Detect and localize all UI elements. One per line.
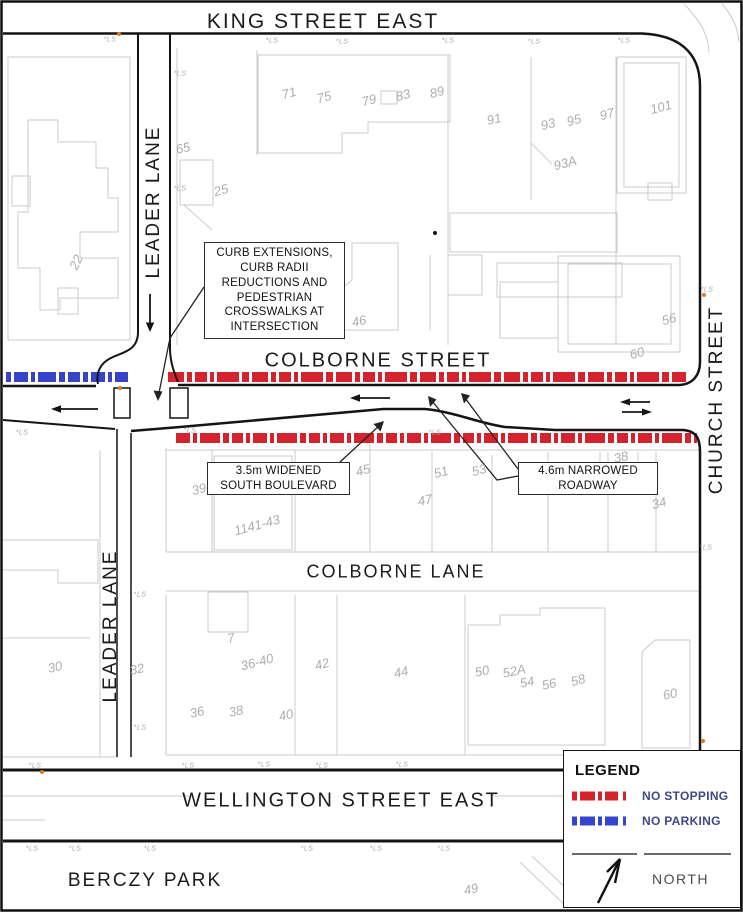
north-label: NORTH (652, 871, 709, 887)
legend-no-stopping-label: NO STOPPING (642, 789, 728, 803)
north-arrow-icon (598, 859, 620, 903)
street-label-king: KING STREET EAST (207, 10, 439, 34)
crosswalk-box-west (114, 388, 130, 418)
legend-title: LEGEND (575, 762, 641, 779)
street-label-wellington: WELLINGTON STREET EAST (182, 790, 500, 813)
legend-no-parking-label: NO PARKING (642, 814, 721, 828)
street-label-leader-lane-upper: LEADER LANE (143, 126, 165, 279)
crosswalk-box-east (170, 388, 188, 418)
park-label-berczy: BERCZY PARK (68, 870, 222, 892)
legend-box: LEGEND NO STOPPING NO PARKING NORTH (563, 750, 741, 908)
street-label-church: CHURCH STREET (706, 306, 728, 495)
callout-narrowed-roadway: 4.6m NARROWED ROADWAY (518, 462, 658, 495)
survey-point-dots (40, 32, 706, 774)
callout-widened-boulevard: 3.5m WIDENED SOUTH BOULEVARD (207, 462, 350, 495)
street-label-leader-lane-lower: LEADER LANE (100, 550, 122, 703)
traffic-plan-page: { "map": { "streets": { "king": "KING ST… (0, 0, 743, 912)
street-label-colborne-lane: COLBORNE LANE (306, 562, 485, 583)
callout-curb-extensions: CURB EXTENSIONS, CURB RADII REDUCTIONS A… (204, 242, 345, 339)
street-label-colborne: COLBORNE STREET (265, 350, 492, 373)
